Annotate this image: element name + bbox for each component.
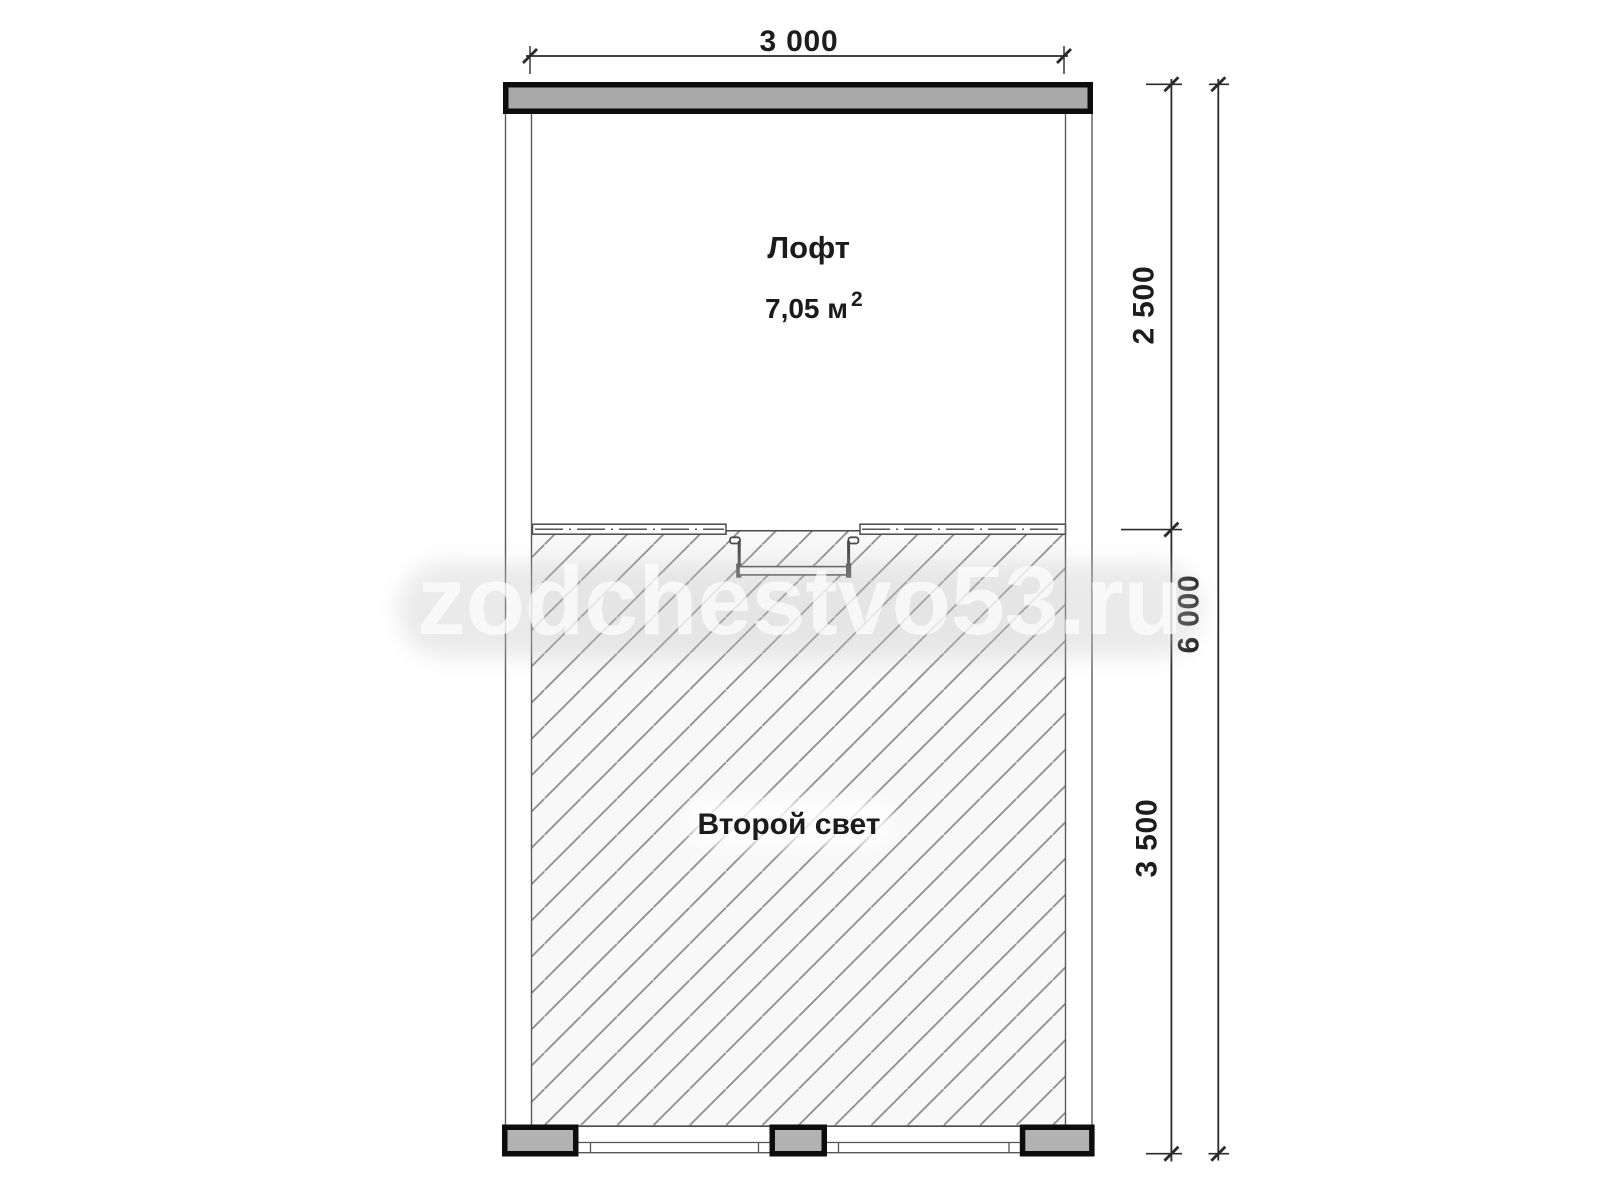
svg-text:Лофт: Лофт: [767, 230, 850, 265]
svg-text:2 500: 2 500: [1128, 265, 1161, 344]
svg-text:Второй свет: Второй свет: [697, 808, 880, 841]
svg-text:3 500: 3 500: [1131, 798, 1164, 877]
svg-text:zodchestvo53.ru: zodchestvo53.ru: [417, 546, 1182, 655]
svg-text:3 000: 3 000: [759, 25, 838, 58]
